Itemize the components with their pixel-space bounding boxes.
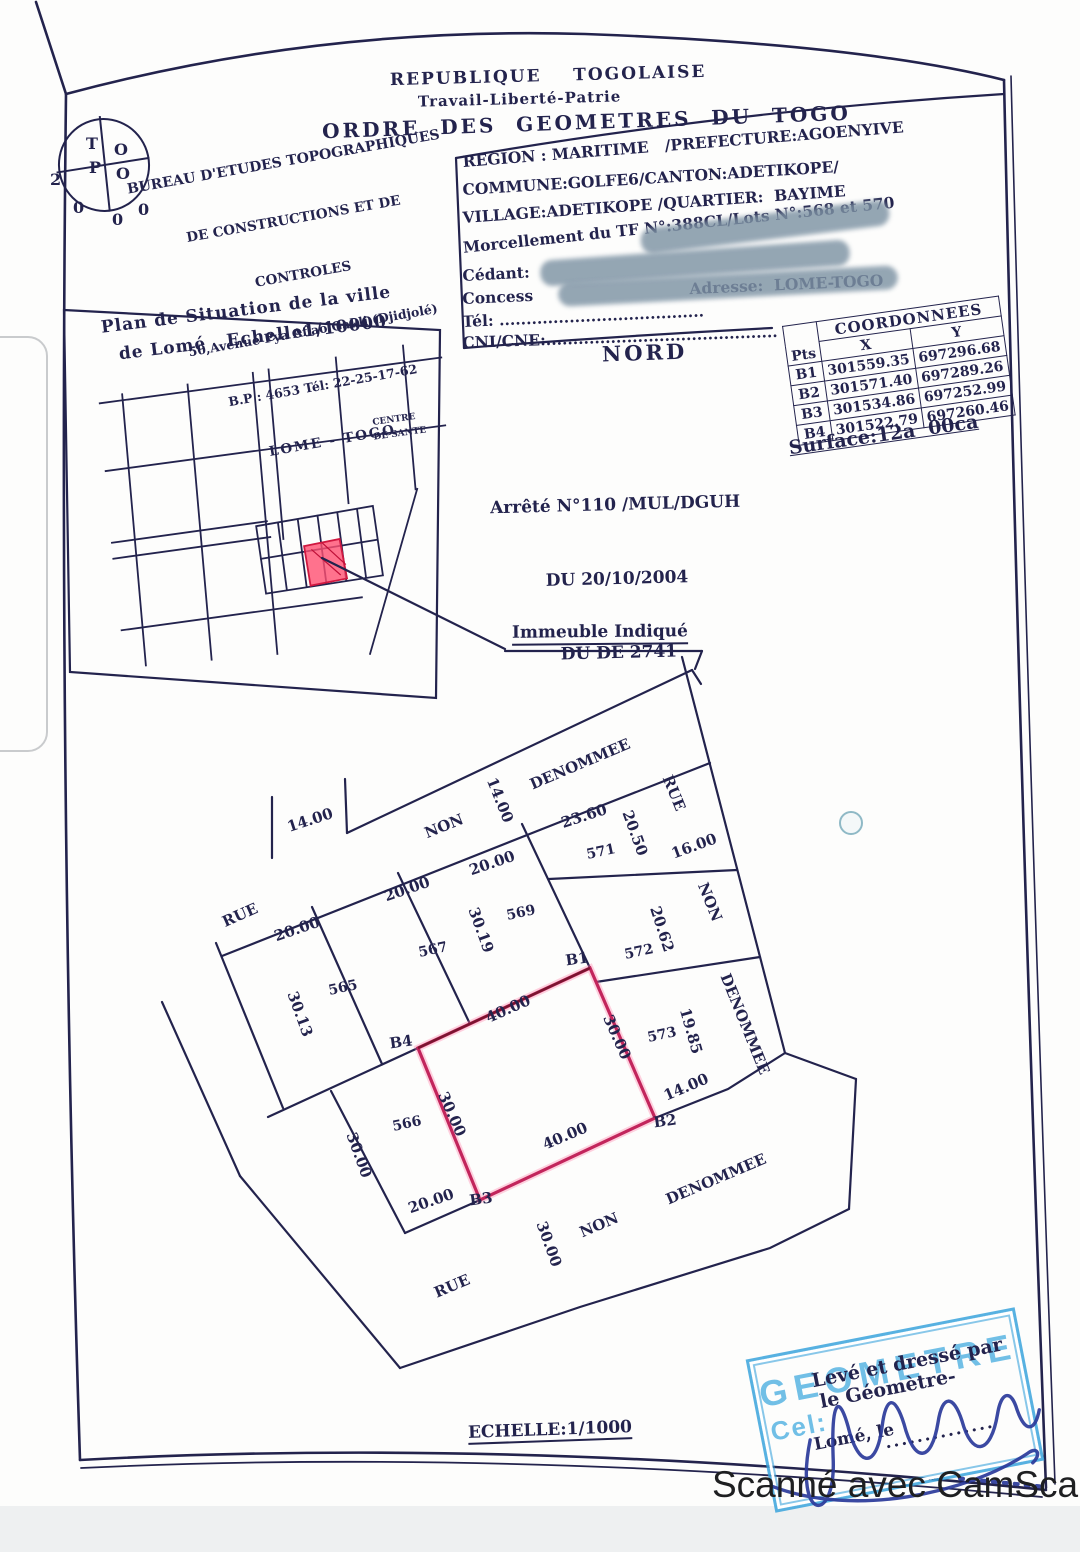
signature [726,1324,1056,1544]
bureau-line2: DE CONSTRUCTIONS ET DE [125,181,463,257]
highlighted-parcel-outline [418,968,655,1200]
corner-b1: B1 [564,948,589,969]
logo-letter-p: P [89,158,101,177]
north-label: NORD [602,339,688,367]
coords-col-pts: Pts [783,322,822,366]
arrete-line1: Arrêté N°110 /MUL/DGUH [490,490,741,521]
arrete-line2: DU 20/10/2004 [492,564,743,595]
punch-hole-mark [839,811,863,835]
logo-letter-o2: O [116,164,130,183]
immeuble-label: Immeuble Indiqué [512,621,688,646]
corner-b3: B3 [468,1188,493,1209]
logo-letter-t: T [86,134,98,153]
scanner-ui-fragment [0,336,48,752]
logo-letter-o1: O [114,140,128,159]
logo-stray-2: 2 [50,170,61,189]
bureau-line5: B.P : 4653 Tél: 22-25-17-62 [154,348,492,422]
scanned-survey-document: REPUBLIQUE TOGOLAISE Travail-Liberté-Pat… [0,0,1080,1552]
arrete-block: Arrêté N°110 /MUL/DGUH DU 20/10/2004 DU … [488,441,745,718]
corner-b4: B4 [388,1031,413,1052]
camscanner-label: Scanné avec CamScanner [712,1464,1080,1506]
corner-b2: B2 [652,1110,677,1131]
logo-stray-0b: 0 [112,210,123,229]
bureau-line6: LOME - TOGO [164,403,502,479]
logo-stray-0c: 0 [138,200,149,219]
info-cedant: Cédant: [462,262,530,284]
bureau-line1: BUREAU D'ETUDES TOPOGRAPHIQUES [115,125,453,201]
logo-stray-0a: 0 [73,198,84,217]
